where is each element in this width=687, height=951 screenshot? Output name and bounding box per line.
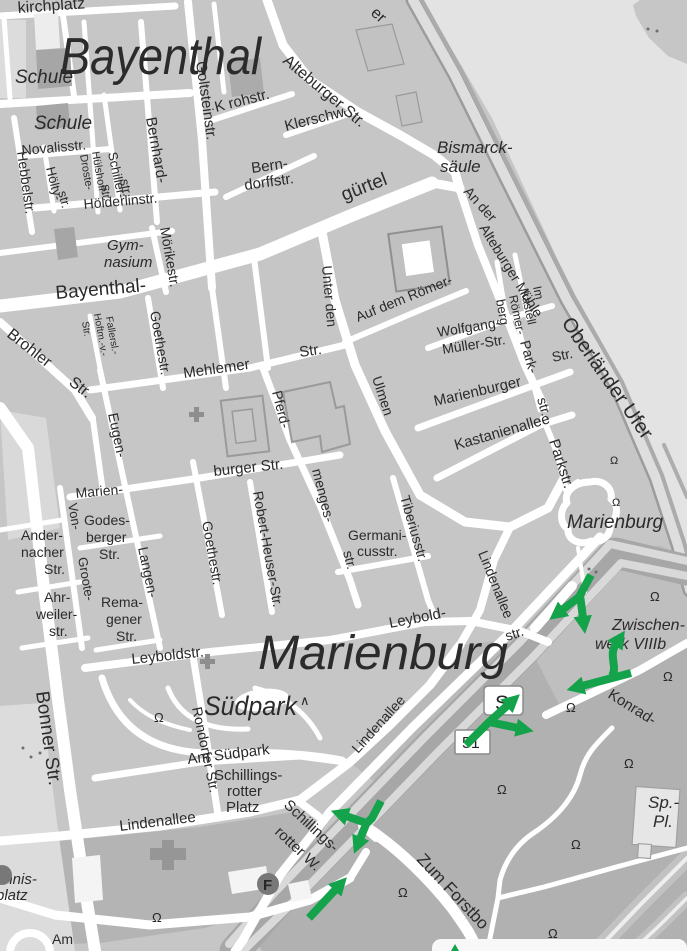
svg-text:weiler-: weiler- [35,606,78,622]
svg-text:Ω: Ω [571,837,581,852]
svg-text:Schule: Schule [15,67,73,88]
svg-text:Ahr-: Ahr- [44,589,71,605]
svg-text:werk VIIIb: werk VIIIb [595,636,666,653]
svg-text:Ω: Ω [610,455,618,467]
svg-text:nacher: nacher [21,544,64,560]
svg-text:Ω: Ω [497,782,507,797]
svg-text:gener: gener [106,611,142,627]
svg-text:Bayenthal: Bayenthal [60,28,262,86]
svg-text:cusstr.: cusstr. [357,543,397,559]
svg-text:nasium: nasium [104,254,152,271]
svg-text:Marienburg: Marienburg [567,512,664,533]
svg-text:∧: ∧ [300,693,310,708]
svg-text:Am: Am [52,931,73,947]
svg-text:Marienburg: Marienburg [258,627,508,680]
svg-text:Ω: Ω [650,589,660,604]
svg-text:Str.: Str. [99,546,120,562]
svg-text:Ω: Ω [624,756,634,771]
svg-text:Str.: Str. [298,341,323,361]
svg-text:Bismarck-: Bismarck- [437,138,513,157]
svg-text:Ω: Ω [612,497,620,509]
svg-text:Südpark: Südpark [204,691,298,721]
svg-text:Sp.-: Sp.- [648,793,680,812]
svg-text:rotter: rotter [227,783,262,800]
svg-text:F: F [263,877,272,894]
svg-text:Str.: Str. [116,628,137,644]
svg-text:Gym-: Gym- [107,237,144,254]
svg-text:Godes-: Godes- [84,512,130,528]
svg-text:str.: str. [49,623,68,639]
svg-text:Ω: Ω [154,710,164,725]
svg-text:Ω: Ω [398,885,408,900]
svg-text:Zwischen-: Zwischen- [611,617,685,634]
svg-text:Ω: Ω [663,669,673,684]
svg-text:Schillings-: Schillings- [214,767,282,784]
svg-text:Ander-: Ander- [21,527,63,543]
svg-text:Ω: Ω [152,910,162,925]
svg-text:Ω: Ω [566,700,576,715]
svg-text:Platz: Platz [226,799,259,816]
svg-text:Str.: Str. [44,561,65,577]
svg-text:Im: Im [530,285,546,301]
svg-text:Pl.: Pl. [653,812,673,831]
svg-text:platz: platz [0,887,28,904]
svg-text:Rema-: Rema- [101,594,143,610]
svg-text:berger: berger [86,529,127,545]
svg-text:säule: säule [440,157,481,176]
svg-text:Schule: Schule [34,113,92,134]
svg-text:Germani-: Germani- [348,527,407,543]
svg-text:Ω: Ω [548,926,558,941]
